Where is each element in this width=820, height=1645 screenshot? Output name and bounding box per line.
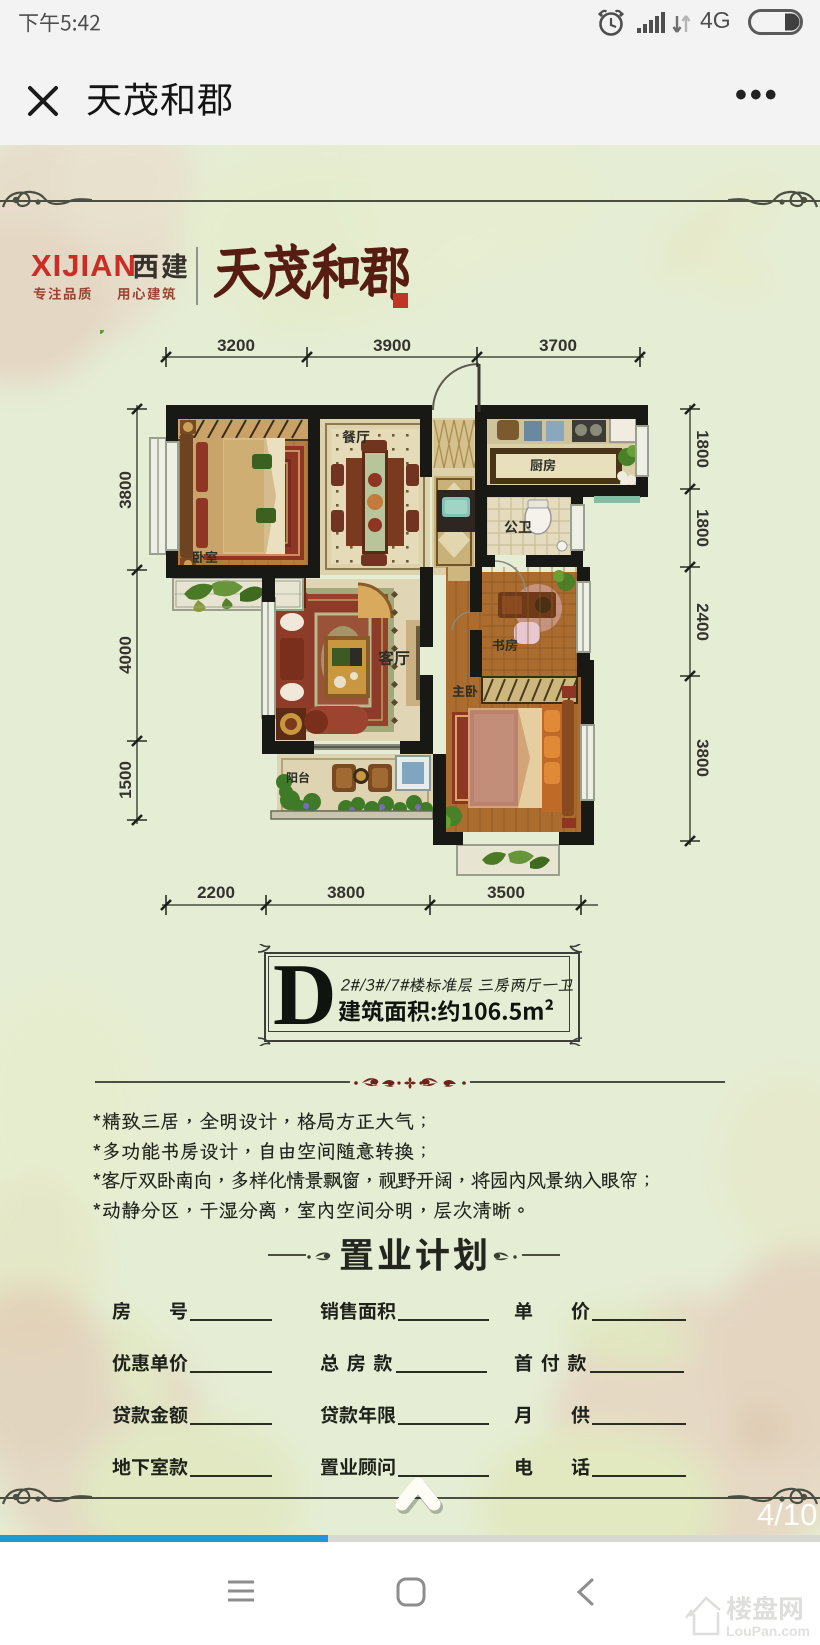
svg-text:1800: 1800 [693, 509, 712, 547]
svg-text:1500: 1500 [116, 761, 135, 799]
svg-text:LouPan.com: LouPan.com [726, 1623, 810, 1639]
svg-text:2200: 2200 [197, 883, 235, 902]
svg-text:3700: 3700 [539, 336, 577, 355]
svg-text:3500: 3500 [487, 883, 525, 902]
svg-text:1800: 1800 [693, 430, 712, 468]
svg-text:3800: 3800 [693, 739, 712, 777]
svg-text:3200: 3200 [217, 336, 255, 355]
svg-text:3800: 3800 [116, 471, 135, 509]
svg-text:3800: 3800 [327, 883, 365, 902]
svg-text:4000: 4000 [116, 636, 135, 674]
svg-text:2400: 2400 [693, 603, 712, 641]
svg-text:3900: 3900 [373, 336, 411, 355]
